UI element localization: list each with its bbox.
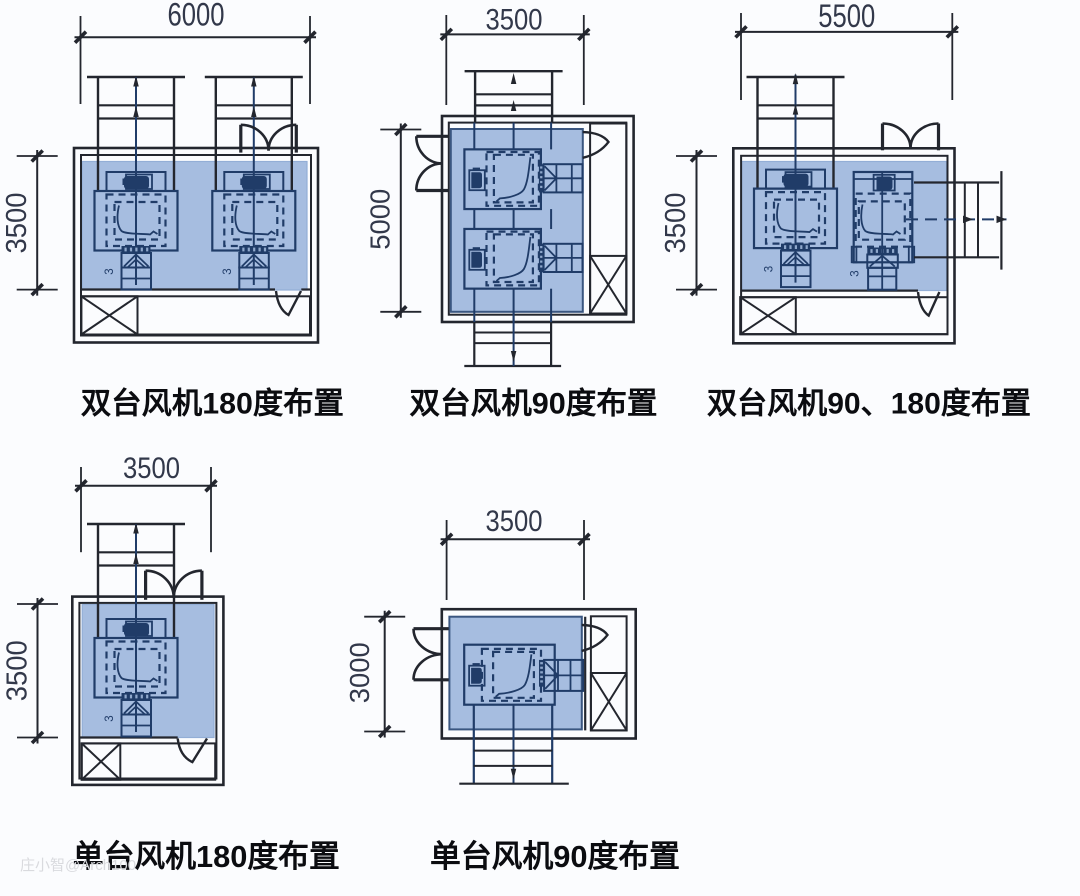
svg-text:3500: 3500 — [486, 505, 543, 538]
svg-text:3: 3 — [104, 715, 116, 721]
svg-text:3000: 3000 — [344, 642, 375, 703]
svg-text:6000: 6000 — [168, 0, 225, 33]
svg-text:双台风机90、180度布置: 双台风机90、180度布置 — [707, 387, 1031, 421]
svg-text:3500: 3500 — [660, 193, 692, 254]
svg-text:3: 3 — [850, 270, 862, 276]
svg-text:单台风机90度布置: 单台风机90度布置 — [430, 839, 680, 874]
svg-text:5500: 5500 — [818, 0, 875, 34]
svg-text:3: 3 — [104, 268, 116, 274]
svg-text:5000: 5000 — [364, 189, 395, 250]
svg-text:3500: 3500 — [1, 193, 33, 254]
svg-text:双台风机90度布置: 双台风机90度布置 — [410, 387, 658, 421]
svg-text:庄小智@Arch100: 庄小智@Arch100 — [20, 856, 136, 874]
svg-text:双台风机180度布置: 双台风机180度布置 — [81, 387, 344, 421]
svg-text:3500: 3500 — [2, 640, 34, 701]
svg-text:3: 3 — [222, 268, 234, 274]
svg-text:3500: 3500 — [123, 452, 180, 485]
svg-text:3500: 3500 — [486, 4, 543, 37]
svg-text:3: 3 — [764, 266, 776, 272]
